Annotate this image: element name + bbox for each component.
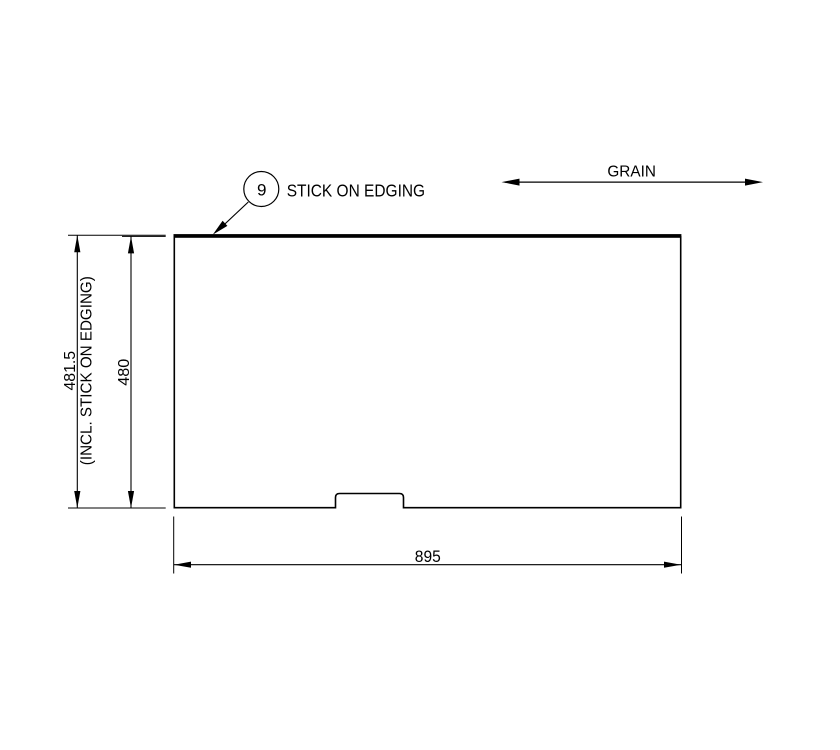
svg-text:STICK ON EDGING: STICK ON EDGING <box>287 181 425 201</box>
svg-text:(INCL. STICK ON EDGING): (INCL. STICK ON EDGING) <box>79 276 96 465</box>
svg-text:GRAIN: GRAIN <box>607 163 656 180</box>
svg-text:480: 480 <box>116 359 133 386</box>
svg-text:481.5: 481.5 <box>62 351 79 391</box>
svg-text:9: 9 <box>257 180 266 199</box>
svg-text:895: 895 <box>415 547 441 566</box>
